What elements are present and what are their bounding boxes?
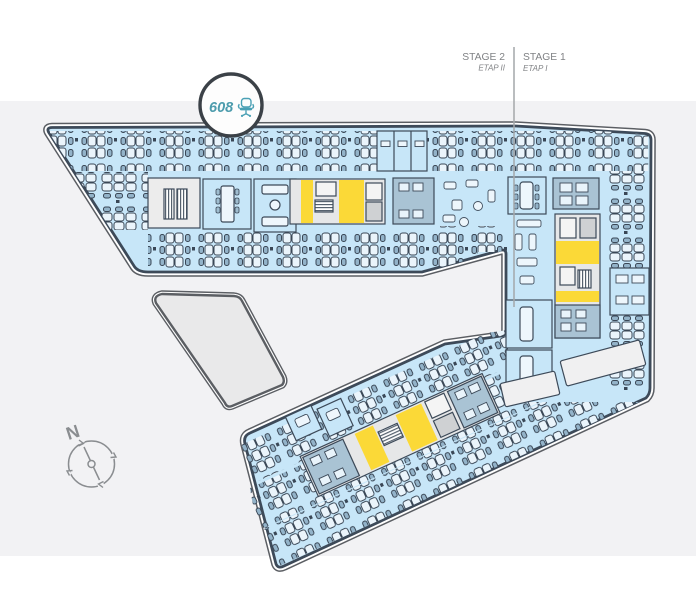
svg-text:STAGE 1: STAGE 1 bbox=[523, 52, 566, 63]
svg-text:ETAP II: ETAP II bbox=[478, 64, 505, 73]
svg-text:608: 608 bbox=[209, 100, 234, 116]
svg-text:STAGE 2: STAGE 2 bbox=[462, 52, 505, 63]
svg-text:ETAP I: ETAP I bbox=[523, 64, 548, 73]
